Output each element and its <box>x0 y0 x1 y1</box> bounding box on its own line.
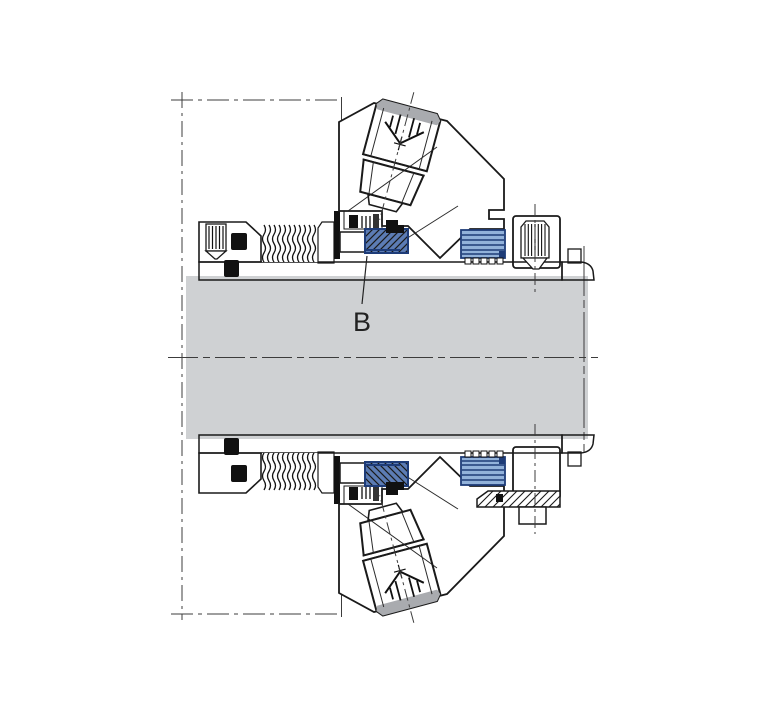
shaft <box>186 276 588 439</box>
technical-drawing: B <box>0 0 768 716</box>
figure-canvas: B <box>0 0 768 716</box>
flange-gasket-dot <box>496 494 503 502</box>
collar-set-screw <box>206 224 226 259</box>
gland-flange-bracket <box>477 491 560 507</box>
gland-bolt <box>519 507 546 524</box>
label-b: B <box>353 307 371 337</box>
